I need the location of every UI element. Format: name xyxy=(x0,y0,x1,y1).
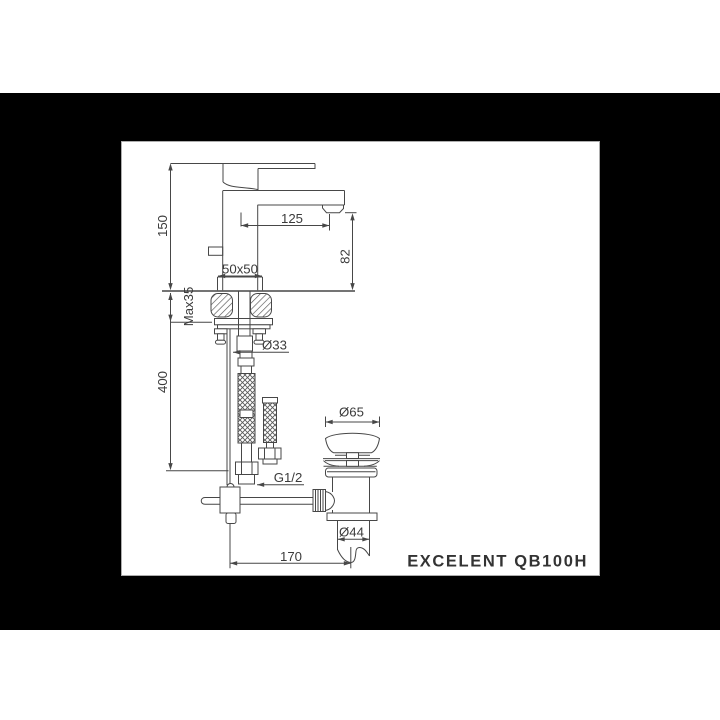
braided-section xyxy=(264,403,277,443)
dim-o44-label: Ø44 xyxy=(339,524,364,539)
dimension-o44: Ø44 xyxy=(338,524,370,541)
dimension-50x50: 50x50 xyxy=(218,262,262,279)
dimension-max35: Max35 xyxy=(168,287,212,327)
dim-125-label: 125 xyxy=(281,211,303,226)
dimension-g12: G1/2 xyxy=(257,470,304,487)
page: { "drawing_labels": { "dim_150": "150", … xyxy=(0,0,720,720)
supply-hose-short xyxy=(259,398,282,465)
dim-max35-label: Max35 xyxy=(181,287,196,327)
linkage-body xyxy=(220,487,240,513)
popup-cap xyxy=(326,433,380,452)
drawing-panel: 150 Max35 400 125 82 50x50 Ø33 xyxy=(121,141,600,576)
pipe-break-symbol xyxy=(338,548,370,563)
dimension-82: 82 xyxy=(338,213,357,291)
dimension-170: 170 xyxy=(230,547,351,568)
aerator xyxy=(323,205,344,213)
dim-g12-label: G1/2 xyxy=(274,470,303,485)
dimension-o65: Ø65 xyxy=(326,405,380,428)
clamp-right xyxy=(251,294,272,318)
dim-o33-label: Ø33 xyxy=(262,338,287,353)
dim-o65-label: Ø65 xyxy=(339,405,364,420)
drain-linkage xyxy=(201,484,334,569)
brand-model-text: EXCELENT QB100H xyxy=(407,553,588,571)
dim-50x50-label: 50x50 xyxy=(222,262,258,277)
supply-hose-long xyxy=(236,336,259,484)
dim-400-label: 400 xyxy=(155,371,170,393)
dim-170-label: 170 xyxy=(280,549,302,564)
dimension-150: 150 xyxy=(155,163,173,290)
knurled-adjuster xyxy=(313,490,326,512)
adjuster-dome xyxy=(326,492,335,511)
clamp-left xyxy=(211,294,233,318)
dimension-125: 125 xyxy=(241,211,330,231)
faucet-technical-drawing: 150 Max35 400 125 82 50x50 Ø33 xyxy=(122,142,599,575)
faucet-body-outline xyxy=(162,164,355,292)
pop-up-rod xyxy=(227,329,230,485)
braided-section xyxy=(238,374,255,444)
body-side-tab xyxy=(209,247,223,255)
dim-150-label: 150 xyxy=(155,215,170,237)
g12-nut xyxy=(236,462,259,475)
dim-82-label: 82 xyxy=(338,249,353,264)
